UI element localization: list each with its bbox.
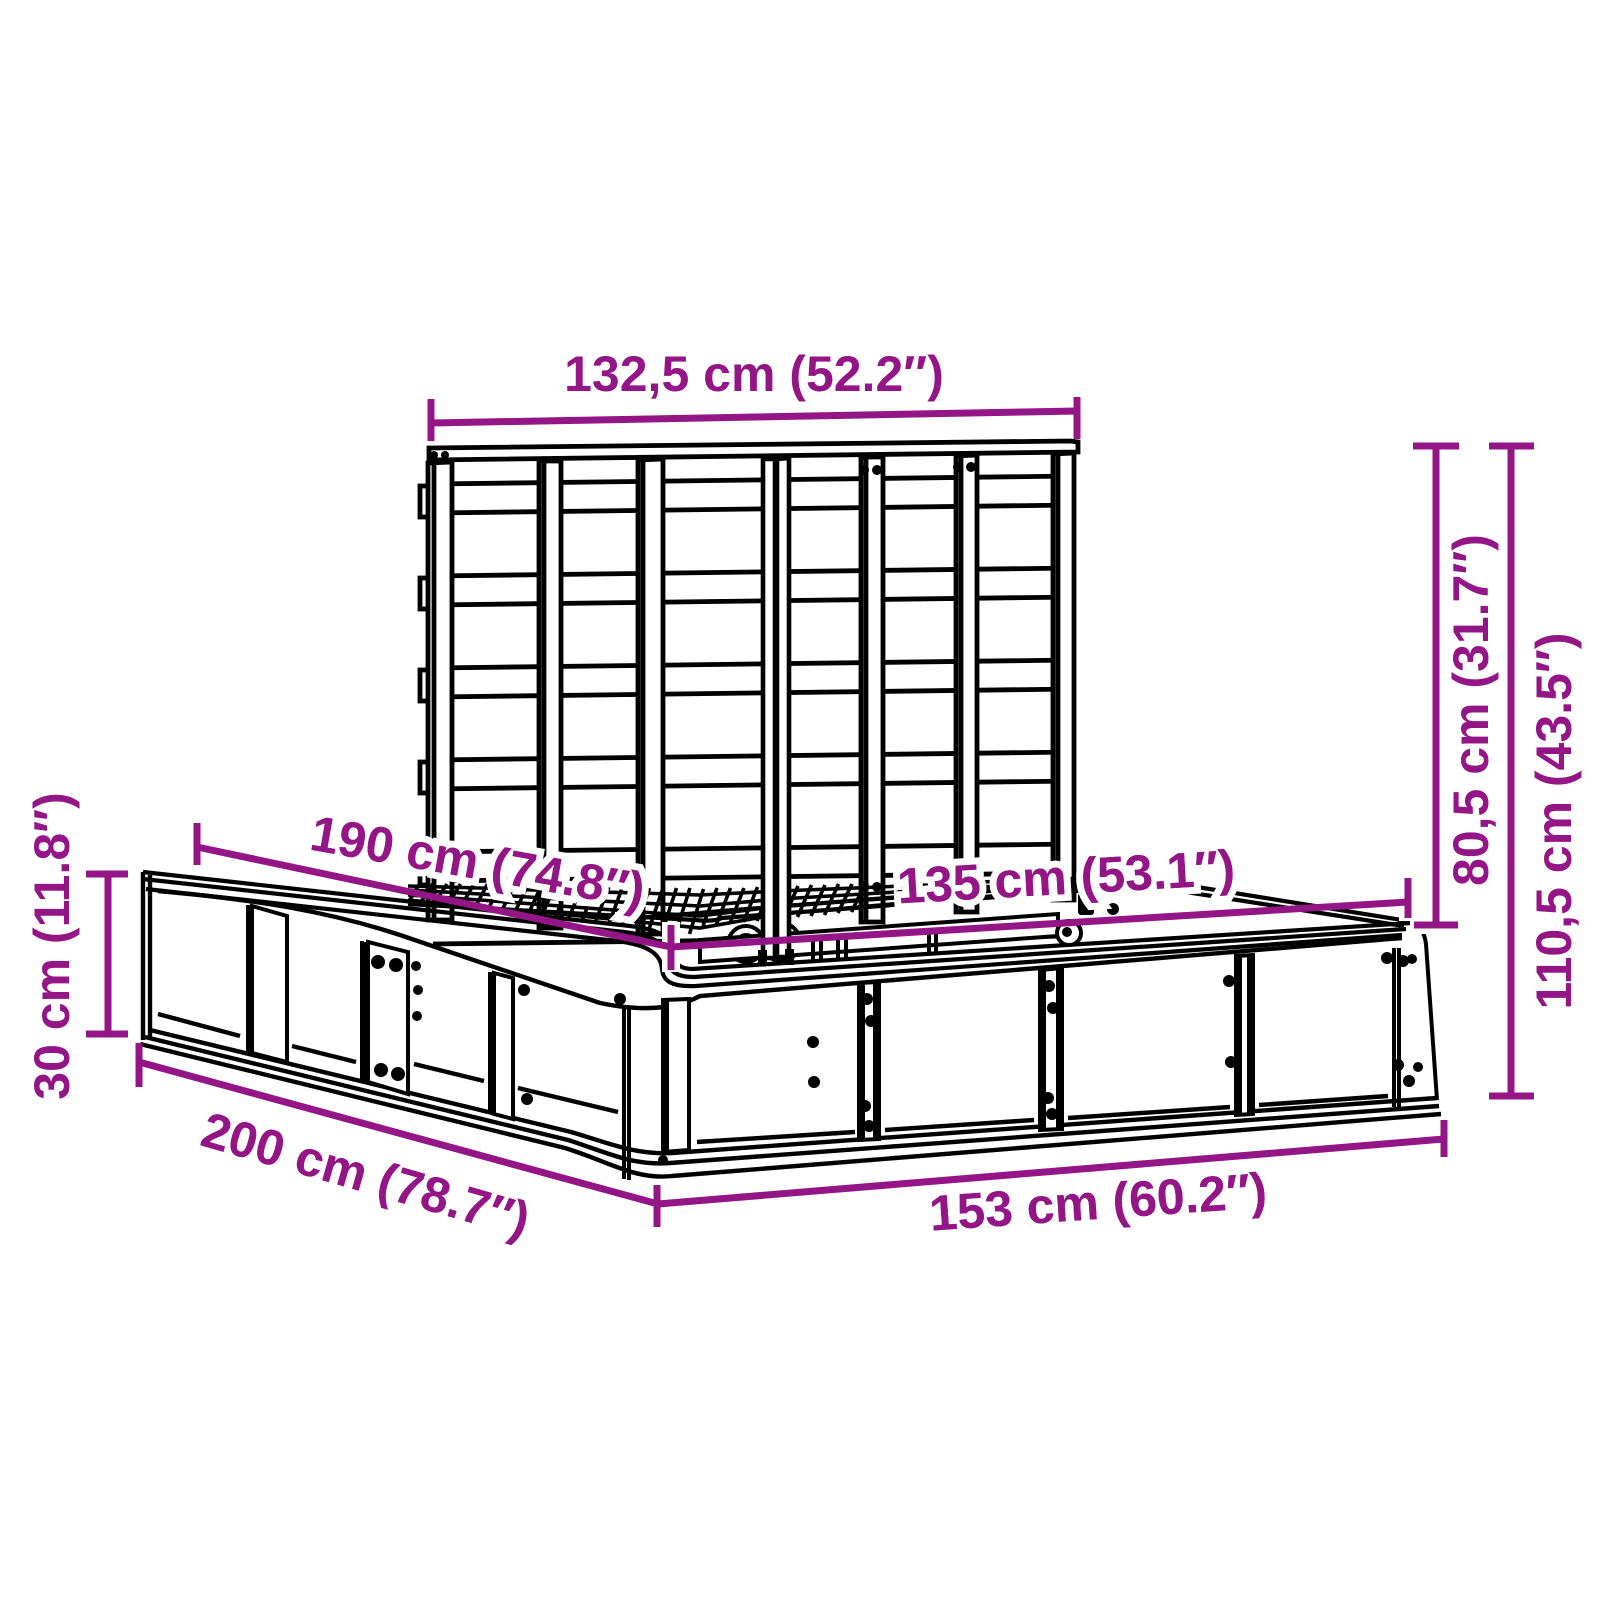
svg-text:110,5 cm (43.5″): 110,5 cm (43.5″) <box>1526 633 1582 1010</box>
svg-text:30 cm (11.8″): 30 cm (11.8″) <box>24 792 80 1099</box>
svg-text:132,5 cm (52.2″): 132,5 cm (52.2″) <box>564 346 944 402</box>
svg-text:80,5 cm (31.7″): 80,5 cm (31.7″) <box>1443 534 1499 886</box>
